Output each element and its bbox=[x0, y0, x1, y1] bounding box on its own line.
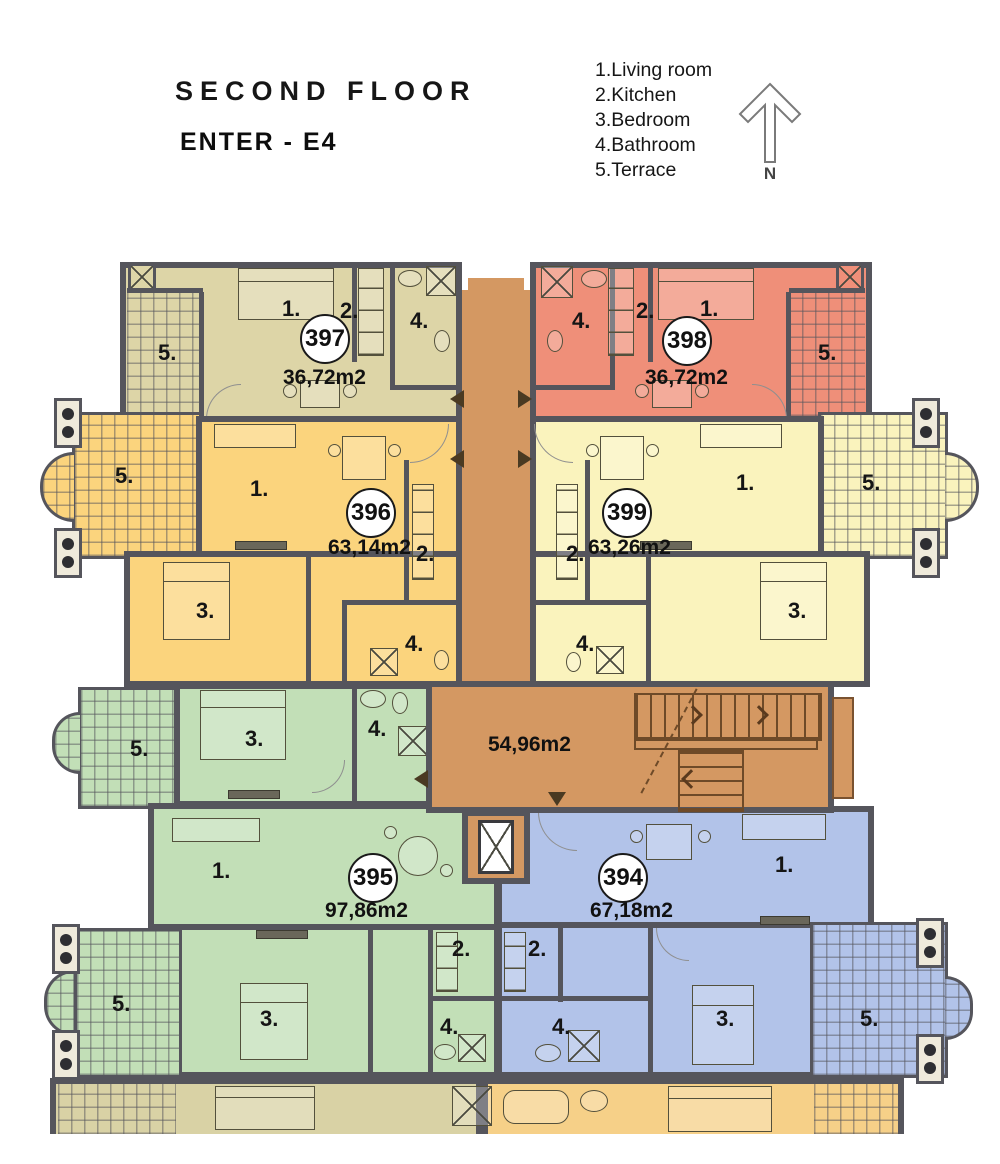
wall bbox=[648, 922, 653, 1078]
furniture-tv bbox=[235, 541, 287, 550]
room-label-bathroom: 4. bbox=[552, 1014, 570, 1040]
balcony-post bbox=[54, 528, 82, 578]
balcony-box-icon bbox=[128, 263, 156, 291]
terrace-bay-395-lower bbox=[44, 970, 74, 1036]
wall bbox=[342, 600, 347, 684]
apartment-398-number-badge: 398 bbox=[662, 316, 712, 366]
furniture-sink bbox=[360, 690, 386, 708]
balcony-post bbox=[916, 1034, 944, 1084]
balcony-box-icon bbox=[836, 263, 864, 291]
door-arrow-icon bbox=[414, 770, 428, 788]
furniture-shower bbox=[426, 266, 456, 296]
furniture-shower bbox=[568, 1030, 600, 1062]
furniture-chair bbox=[586, 444, 599, 457]
room-label-kitchen: 2. bbox=[528, 936, 546, 962]
stair-landing-balcony bbox=[832, 697, 854, 799]
furniture-shower bbox=[370, 648, 398, 676]
furniture-toilet bbox=[392, 692, 408, 714]
apartment-397-number-badge: 397 bbox=[300, 314, 350, 364]
furniture-chair bbox=[328, 444, 341, 457]
balcony-post bbox=[54, 398, 82, 448]
door-arrow-icon bbox=[450, 450, 464, 468]
terrace-bay-399 bbox=[945, 452, 979, 522]
furniture-sofa bbox=[700, 424, 782, 448]
north-letter: N bbox=[764, 164, 776, 182]
furniture-sofa bbox=[172, 818, 260, 842]
door-arrow-icon bbox=[450, 390, 464, 408]
apartment-395-number-badge: 395 bbox=[348, 853, 398, 903]
terrace-bay-394 bbox=[945, 976, 973, 1040]
furniture-chair bbox=[698, 830, 711, 843]
room-label-bathroom: 4. bbox=[410, 308, 428, 334]
furniture-sink bbox=[535, 1044, 561, 1062]
furniture-sink bbox=[581, 270, 607, 288]
wall bbox=[390, 262, 395, 390]
stairs-landing bbox=[634, 737, 818, 750]
wall bbox=[496, 996, 652, 1001]
terrace-grid-395-upper bbox=[78, 687, 180, 809]
furniture-bathtub bbox=[503, 1090, 569, 1124]
room-label-terrace: 5. bbox=[158, 340, 176, 366]
room-label-bedroom: 3. bbox=[788, 598, 806, 624]
furniture-shower bbox=[541, 266, 573, 298]
legend-item-bathroom: 4.Bathroom bbox=[595, 133, 712, 158]
balcony-post bbox=[912, 398, 940, 448]
room-label-living: 1. bbox=[700, 296, 718, 322]
furniture-shower bbox=[596, 646, 624, 674]
furniture-bed bbox=[668, 1086, 772, 1132]
stairs-upper-run bbox=[634, 693, 822, 741]
furniture-sink bbox=[580, 1090, 608, 1112]
room-label-bathroom: 4. bbox=[368, 716, 386, 742]
apartment-394-area: 67,18m2 bbox=[590, 899, 673, 923]
room-label-living: 1. bbox=[282, 296, 300, 322]
room-label-living: 1. bbox=[736, 470, 754, 496]
furniture-bed bbox=[200, 690, 286, 760]
balcony-post bbox=[916, 918, 944, 968]
balcony-post bbox=[52, 924, 80, 974]
apartment-396-area: 63,14m2 bbox=[328, 536, 411, 560]
furniture-sink bbox=[434, 1044, 456, 1060]
room-label-kitchen: 2. bbox=[566, 541, 584, 567]
furniture-kitchen-counter bbox=[504, 932, 526, 992]
room-label-kitchen: 2. bbox=[636, 298, 654, 324]
furniture-tv bbox=[228, 790, 280, 799]
lower-floor-terrace-grid bbox=[58, 1084, 176, 1134]
apartment-394-number-badge: 394 bbox=[598, 853, 648, 903]
room-label-kitchen: 2. bbox=[416, 541, 434, 567]
furniture-chair bbox=[384, 826, 397, 839]
furniture-round-table bbox=[398, 836, 438, 876]
door-arrow-icon bbox=[518, 390, 532, 408]
elevator-icon bbox=[478, 820, 514, 874]
room-label-terrace: 5. bbox=[818, 340, 836, 366]
apartment-399-number-badge: 399 bbox=[602, 488, 652, 538]
door-arrow-icon bbox=[518, 450, 532, 468]
room-label-living: 1. bbox=[250, 476, 268, 502]
wall bbox=[368, 924, 373, 1078]
room-label-kitchen: 2. bbox=[452, 936, 470, 962]
furniture-kitchen-counter bbox=[358, 268, 384, 356]
wall bbox=[646, 551, 651, 687]
furniture-shower bbox=[458, 1034, 486, 1062]
furniture-chair bbox=[440, 864, 453, 877]
furniture-table bbox=[646, 824, 692, 860]
room-label-bathroom: 4. bbox=[572, 308, 590, 334]
wall bbox=[428, 924, 433, 1078]
wall bbox=[585, 460, 590, 604]
furniture-tv bbox=[760, 916, 810, 925]
room-label-living: 1. bbox=[775, 852, 793, 878]
wall bbox=[306, 551, 311, 687]
furniture-sofa bbox=[214, 424, 296, 448]
page-title: SECOND FLOOR bbox=[175, 76, 477, 107]
furniture-tv bbox=[256, 930, 308, 939]
apartment-398-area: 36,72m2 bbox=[645, 366, 728, 390]
furniture-kitchen-counter bbox=[608, 268, 634, 356]
furniture-toilet bbox=[547, 330, 563, 352]
door-arrow-icon bbox=[548, 792, 566, 806]
room-label-bedroom: 3. bbox=[716, 1006, 734, 1032]
corridor-area-label: 54,96m2 bbox=[488, 733, 571, 757]
furniture-bed bbox=[215, 1086, 315, 1130]
furniture-chair bbox=[388, 444, 401, 457]
image-cutoff bbox=[0, 1136, 1000, 1164]
legend-item-terrace: 5.Terrace bbox=[595, 158, 712, 183]
enter-label: ENTER - E4 bbox=[180, 128, 338, 157]
room-label-bathroom: 4. bbox=[440, 1014, 458, 1040]
wall bbox=[536, 385, 615, 390]
north-arrow-icon: N bbox=[733, 80, 807, 182]
room-label-terrace: 5. bbox=[112, 991, 130, 1017]
furniture-table bbox=[600, 436, 644, 480]
apartment-396-number-badge: 396 bbox=[346, 488, 396, 538]
apartment-395-area: 97,86m2 bbox=[325, 899, 408, 923]
balcony-post bbox=[52, 1030, 80, 1080]
furniture-sink bbox=[398, 270, 422, 287]
legend-item-living: 1.Living room bbox=[595, 58, 712, 83]
furniture-toilet bbox=[434, 650, 449, 670]
furniture-toilet bbox=[434, 330, 450, 352]
furniture-shower bbox=[452, 1086, 492, 1126]
wall bbox=[342, 600, 462, 605]
legend: 1.Living room 2.Kitchen 3.Bedroom 4.Bath… bbox=[595, 58, 712, 183]
furniture-shower bbox=[398, 726, 428, 756]
terrace-grid-396 bbox=[72, 412, 202, 559]
wall bbox=[530, 600, 650, 605]
floor-plan-page: SECOND FLOOR ENTER - E4 1.Living room 2.… bbox=[0, 0, 1000, 1164]
room-label-terrace: 5. bbox=[862, 470, 880, 496]
balcony-post bbox=[912, 528, 940, 578]
legend-item-bedroom: 3.Bedroom bbox=[595, 108, 712, 133]
room-label-terrace: 5. bbox=[130, 736, 148, 762]
wall bbox=[786, 292, 791, 416]
furniture-chair bbox=[646, 444, 659, 457]
wall bbox=[199, 292, 204, 416]
wall bbox=[404, 460, 409, 604]
room-label-bedroom: 3. bbox=[245, 726, 263, 752]
furniture-table bbox=[342, 436, 386, 480]
wall bbox=[352, 683, 357, 807]
wall bbox=[428, 996, 500, 1001]
lower-floor-terrace-grid bbox=[814, 1084, 898, 1134]
room-label-terrace: 5. bbox=[860, 1006, 878, 1032]
apartment-397-area: 36,72m2 bbox=[283, 366, 366, 390]
wall bbox=[558, 922, 563, 1002]
apartment-399-area: 63,26m2 bbox=[588, 536, 671, 560]
terrace-bay-395-upper bbox=[52, 712, 80, 774]
room-label-bathroom: 4. bbox=[405, 631, 423, 657]
room-label-kitchen: 2. bbox=[340, 298, 358, 324]
room-label-living: 1. bbox=[212, 858, 230, 884]
furniture-sofa bbox=[742, 814, 826, 840]
room-label-terrace: 5. bbox=[115, 463, 133, 489]
terrace-bay-396 bbox=[40, 452, 74, 522]
room-label-bedroom: 3. bbox=[196, 598, 214, 624]
furniture-chair bbox=[630, 830, 643, 843]
legend-item-kitchen: 2.Kitchen bbox=[595, 83, 712, 108]
room-label-bedroom: 3. bbox=[260, 1006, 278, 1032]
room-label-bathroom: 4. bbox=[576, 631, 594, 657]
